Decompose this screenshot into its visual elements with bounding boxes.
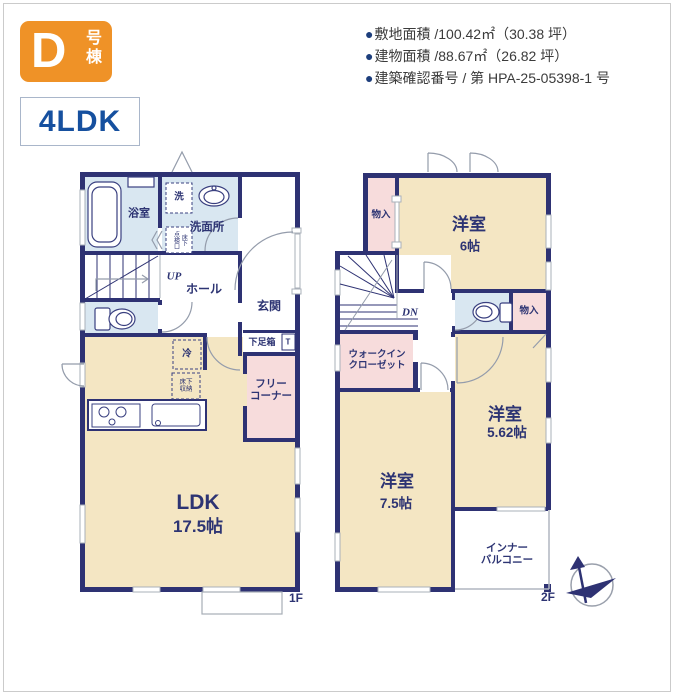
label-fridge: 冷 [182,350,192,361]
compass-icon [566,556,616,606]
room-size-room6: 6帖 [460,240,480,255]
label-closet-a: 物入 [371,211,390,222]
top-door-mark [172,152,192,172]
label-dn: DN [402,307,418,320]
floor-label-2f: 2F [541,591,555,605]
floor2-plan [335,153,551,592]
room-label-entrance: 玄関 [257,300,281,314]
label-up: UP [167,271,182,284]
room-size-room75: 7.5帖 [380,496,412,512]
room-label-free-corner: フリー コーナー [250,378,292,402]
room-size-ldk: 17.5帖 [173,517,223,537]
floor-label-1f: 1F [289,592,303,606]
label-closet-b: 物入 [519,307,538,318]
room-label-room75: 洋室 [380,472,414,492]
room-label-washroom: 洗面所 [190,221,225,234]
stove-icon [92,404,140,427]
label-laundry: 洗 [174,193,184,204]
toilet-2f-icon [500,303,512,322]
exterior-door-mark-2 [470,153,498,172]
exterior-door-mark-1 [428,153,457,172]
room-label-bath: 浴室 [128,208,150,221]
bath-counter [128,177,154,187]
toilet-1f-icon [95,308,110,330]
kitchen-counter [88,400,206,430]
room-label-room562: 洋室 [488,405,522,425]
floorplan-drawing [0,0,674,695]
room-label-room6: 洋室 [452,215,486,235]
room-label-wic: ウォークイン クローゼット [348,350,405,372]
floorplan-sheet: D 号棟 4LDK ●敷地面積 /100.42㎡（30.38 坪） ●建物面積 … [0,0,674,695]
room-label-hall: ホール [186,283,222,297]
label-underfloor-storage: 床下 収納 [180,379,193,394]
room-label-balcony: インナー バルコニー [481,542,533,566]
room-label-ldk: LDK [176,491,219,515]
sink-icon [152,404,200,426]
label-shoebox: 下足箱 [248,337,275,347]
label-toilet-mark: T [286,337,291,346]
porch [202,592,282,614]
label-floor-hatch: 点検口床下 [172,231,187,249]
room-size-room562: 5.62帖 [487,425,527,441]
